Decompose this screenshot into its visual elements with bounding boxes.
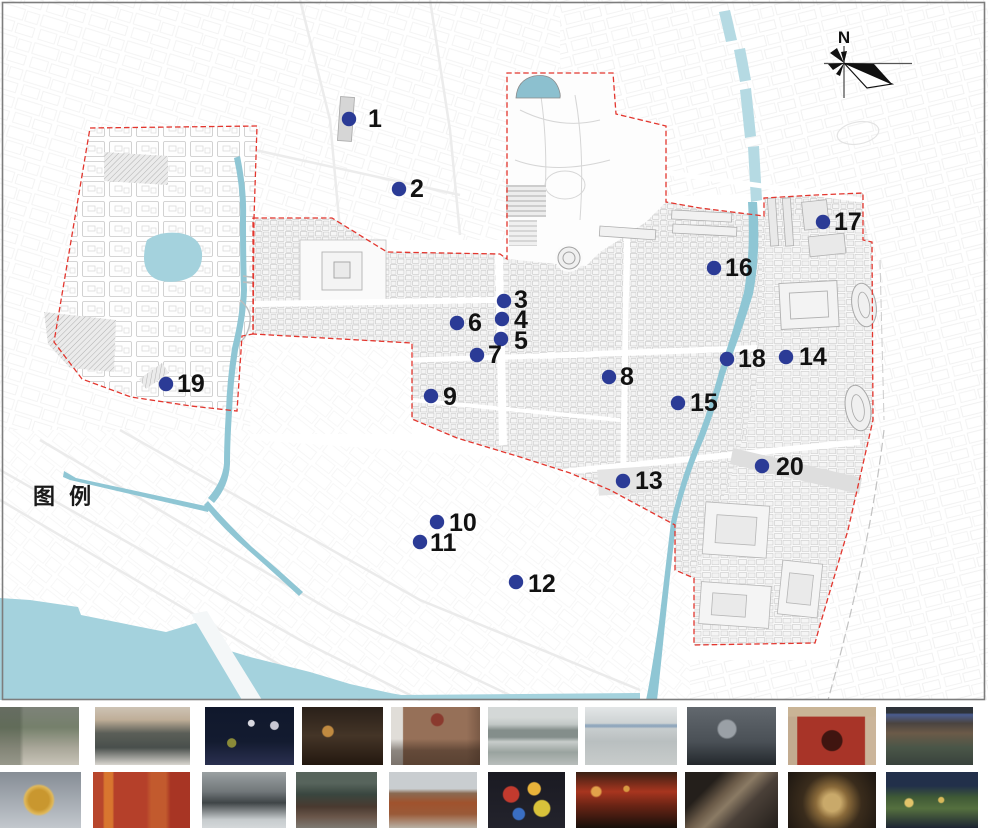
svg-text:N: N [838, 28, 850, 47]
svg-text:17: 17 [834, 208, 862, 236]
svg-text:19: 19 [177, 370, 205, 398]
svg-text:11: 11 [430, 529, 457, 557]
svg-text:8: 8 [620, 363, 634, 391]
svg-text:5: 5 [514, 327, 528, 355]
svg-text:18: 18 [738, 345, 766, 373]
svg-text:13: 13 [635, 467, 663, 495]
svg-text:图 例: 图 例 [33, 484, 95, 509]
svg-text:6: 6 [468, 309, 482, 337]
svg-text:16: 16 [725, 254, 753, 282]
svg-text:2: 2 [410, 175, 424, 203]
svg-text:9: 9 [443, 383, 457, 411]
svg-text:14: 14 [799, 343, 827, 371]
svg-text:15: 15 [690, 389, 718, 417]
svg-text:1: 1 [368, 105, 382, 133]
svg-text:7: 7 [488, 341, 502, 369]
svg-text:20: 20 [776, 453, 804, 481]
svg-text:12: 12 [528, 570, 556, 598]
